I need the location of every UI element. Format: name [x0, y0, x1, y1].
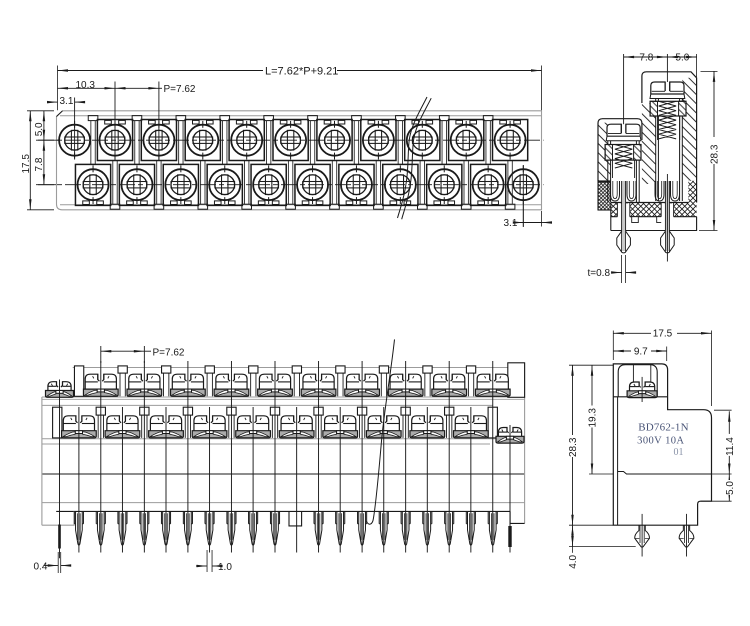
svg-text:L=7.62*P+9.21: L=7.62*P+9.21	[265, 66, 338, 78]
svg-text:P=7.62: P=7.62	[153, 347, 185, 358]
svg-text:4.0: 4.0	[568, 554, 579, 568]
svg-text:17.5: 17.5	[21, 154, 32, 174]
svg-text:7.8: 7.8	[639, 53, 653, 64]
svg-text:0.4: 0.4	[34, 561, 48, 572]
svg-text:3.1: 3.1	[60, 96, 74, 107]
svg-text:17.5: 17.5	[653, 329, 673, 340]
svg-text:t=0.8: t=0.8	[588, 268, 611, 279]
svg-text:5.0: 5.0	[34, 122, 45, 136]
svg-text:19.3: 19.3	[588, 408, 599, 428]
svg-text:28.3: 28.3	[710, 144, 721, 164]
svg-text:5.0: 5.0	[725, 481, 736, 495]
svg-text:28.3: 28.3	[568, 437, 579, 457]
svg-text:9.7: 9.7	[634, 347, 648, 358]
svg-text:3.1: 3.1	[504, 218, 518, 229]
svg-text:01: 01	[674, 447, 684, 458]
svg-text:1.0: 1.0	[218, 562, 232, 573]
svg-text:300V 10A: 300V 10A	[637, 436, 684, 447]
svg-text:BD762-1N: BD762-1N	[638, 422, 689, 434]
svg-text:10.3: 10.3	[76, 80, 96, 91]
svg-text:5.0: 5.0	[675, 53, 689, 64]
svg-text:11.4: 11.4	[725, 437, 736, 456]
svg-text:P=7.62: P=7.62	[164, 84, 196, 95]
svg-text:7.8: 7.8	[34, 157, 45, 171]
